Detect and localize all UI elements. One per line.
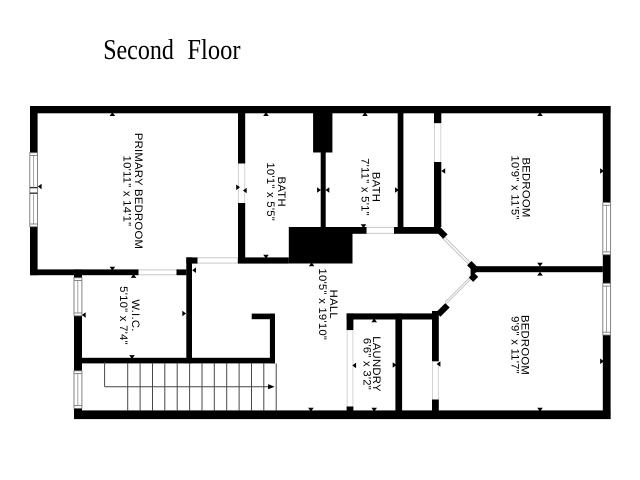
svg-text:5'10" x 7'4": 5'10" x 7'4"	[117, 286, 129, 345]
svg-text:BATH: BATH	[275, 177, 287, 207]
svg-text:W.I.C.: W.I.C.	[129, 299, 141, 331]
svg-text:HALL: HALL	[327, 290, 339, 319]
svg-text:9'9" x 11'7": 9'9" x 11'7"	[508, 316, 520, 374]
svg-text:10'11" x 14'1": 10'11" x 14'1"	[120, 156, 132, 227]
svg-text:Floor: Floor	[187, 35, 240, 66]
svg-text:BEDROOM: BEDROOM	[520, 157, 532, 217]
svg-text:10'9" x 11'5": 10'9" x 11'5"	[508, 155, 520, 219]
svg-text:PRIMARY BEDROOM: PRIMARY BEDROOM	[132, 133, 144, 249]
svg-text:10'5" x 19'10": 10'5" x 19'10"	[316, 268, 328, 340]
svg-text:6'6" x 3'2": 6'6" x 3'2"	[361, 338, 373, 390]
svg-text:10'1" x 5'5": 10'1" x 5'5"	[264, 162, 276, 221]
svg-text:Second: Second	[103, 34, 174, 65]
svg-text:7'11" x 5'1": 7'11" x 5'1"	[359, 158, 371, 216]
